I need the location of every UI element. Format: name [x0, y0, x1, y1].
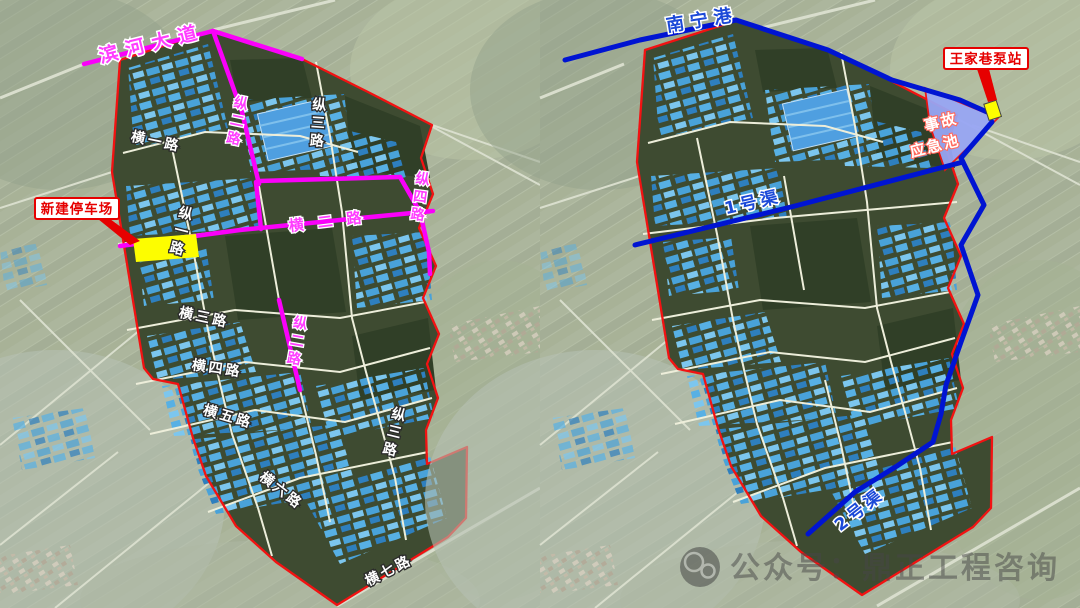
callout-label: 王家巷泵站: [950, 51, 1023, 68]
watermark: 公众号：鼎正工程咨询: [680, 547, 1060, 587]
watermark-text: 公众号：鼎正工程咨询: [730, 551, 1060, 586]
callout-label: 新建停车场: [41, 201, 114, 218]
satellite-map-comparison: 横一路 纵一路 纵三路 横三路 横四路 横五路 纵三路 横六路 横七路 滨河大道…: [0, 0, 1080, 608]
